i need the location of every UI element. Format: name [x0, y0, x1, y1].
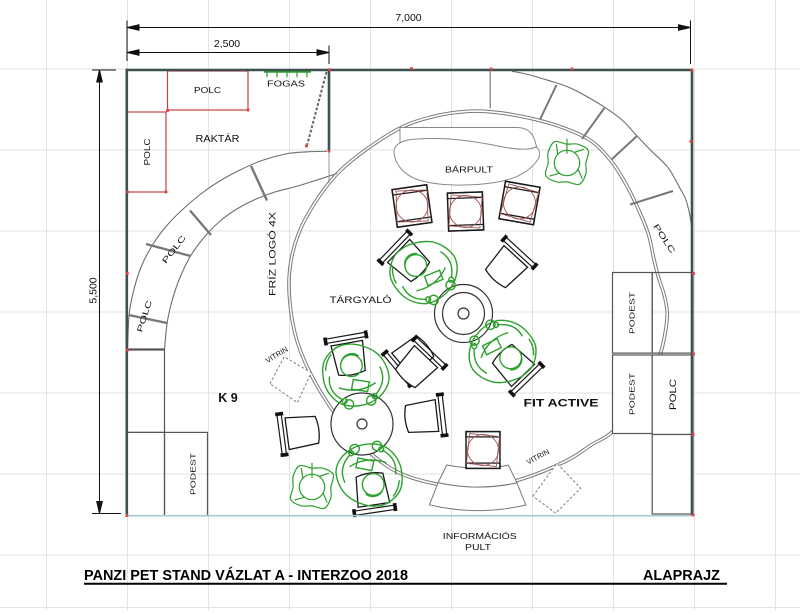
svg-text:K 9: K 9	[218, 391, 238, 405]
svg-text:PULT: PULT	[465, 543, 491, 552]
svg-text:FOGAS: FOGAS	[267, 80, 305, 89]
svg-text:INFORMÁCIÓS: INFORMÁCIÓS	[443, 532, 517, 541]
svg-text:FIT ACTIVE: FIT ACTIVE	[524, 398, 599, 410]
svg-text:PANZI PET STAND VÁZLAT A - INT: PANZI PET STAND VÁZLAT A - INTERZOO 2018	[84, 567, 408, 584]
svg-text:PODEST: PODEST	[189, 452, 198, 495]
svg-text:RAKTÁR: RAKTÁR	[196, 132, 240, 145]
svg-text:PODEST: PODEST	[628, 372, 637, 415]
svg-text:POLC: POLC	[668, 379, 679, 410]
svg-text:ALAPRAJZ: ALAPRAJZ	[643, 567, 720, 584]
svg-text:POLC: POLC	[194, 86, 221, 95]
svg-text:BÁRPULT: BÁRPULT	[445, 165, 493, 175]
svg-text:POLC: POLC	[143, 138, 152, 165]
svg-text:5,500: 5,500	[88, 277, 100, 303]
svg-text:TÁRGYALÓ: TÁRGYALÓ	[330, 295, 392, 306]
svg-text:7,000: 7,000	[395, 12, 421, 24]
svg-text:PODEST: PODEST	[628, 291, 637, 334]
svg-text:2,500: 2,500	[214, 38, 240, 50]
svg-text:FRÍZ LOGÓ 4X: FRÍZ LOGÓ 4X	[268, 211, 279, 296]
